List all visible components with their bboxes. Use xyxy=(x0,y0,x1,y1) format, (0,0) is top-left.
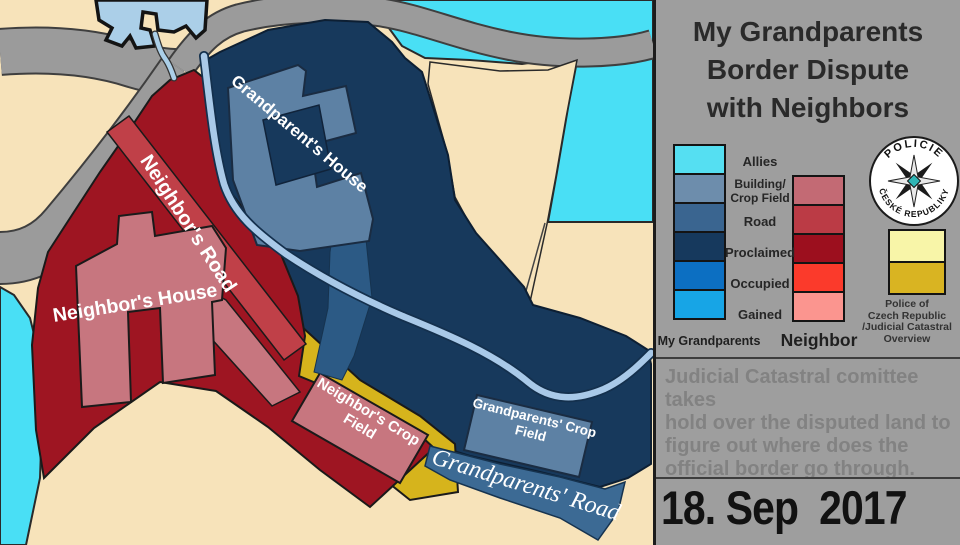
screenshot: Grandparent's House Neighbor's Road Neig… xyxy=(0,0,960,545)
legend-swatch-gp-proclaimed xyxy=(673,231,726,262)
judicial-swatches xyxy=(888,229,946,295)
legend-swatch-gp-building xyxy=(673,173,726,204)
date-display: 18. Sep 2017 xyxy=(661,480,907,535)
legend-label-allies: Allies xyxy=(720,146,800,177)
legend-swatch-gp-road xyxy=(673,202,726,233)
judicial-caption: Police of Czech Republic /Judicial Catas… xyxy=(850,299,960,345)
page-title: My Grandparents Border Dispute with Neig… xyxy=(656,13,960,127)
legend-swatch-gp-occupied xyxy=(673,260,726,291)
info-panel: My Grandparents Border Dispute with Neig… xyxy=(653,0,960,545)
dispute-map: Grandparent's House Neighbor's Road Neig… xyxy=(0,0,653,545)
judicial-swatch-light xyxy=(890,231,944,263)
legend-label-road: Road xyxy=(720,206,800,237)
legend-label-gained: Gained xyxy=(720,299,800,330)
legend-label-occupied: Occupied xyxy=(720,268,800,299)
legend-swatch-gp-gained xyxy=(673,289,726,320)
event-note: Judicial Catastral comittee takes hold o… xyxy=(665,366,957,481)
legend-col-label-grandparents: My Grandparents xyxy=(656,334,762,348)
divider-bottom xyxy=(656,477,960,479)
legend-label-building: Building/Crop Field xyxy=(720,175,800,206)
police-badge: POLICIE ČESKÉ REPUBLIKY xyxy=(866,133,960,229)
legend-label-proclaimed: Proclaimed xyxy=(720,237,800,268)
legend-column-grandparents xyxy=(673,146,726,320)
divider-top xyxy=(656,357,960,359)
judicial-swatch-dark xyxy=(890,263,944,293)
legend-swatch-gp-allies xyxy=(673,144,726,175)
